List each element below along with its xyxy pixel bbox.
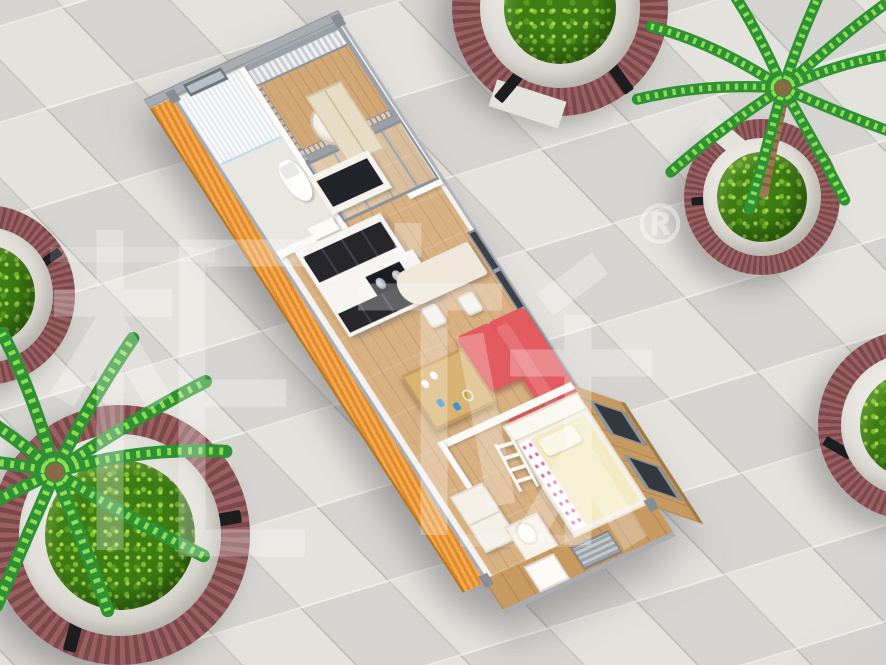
planter-shrub (45, 460, 196, 611)
planter-bench-top (452, 0, 668, 116)
planter-bench-right (684, 119, 840, 275)
napkin (436, 398, 446, 407)
cup (420, 379, 431, 389)
napkin (452, 402, 462, 411)
planter-bench-right-edge (818, 330, 886, 520)
end-door (524, 553, 570, 592)
planter-bench-left (0, 205, 75, 385)
cookie-plate (460, 388, 476, 403)
cup (428, 370, 439, 380)
planter-bench-bottom-left (0, 405, 250, 665)
planter-shrub (717, 152, 807, 242)
plaza-scene: ® (0, 0, 886, 665)
